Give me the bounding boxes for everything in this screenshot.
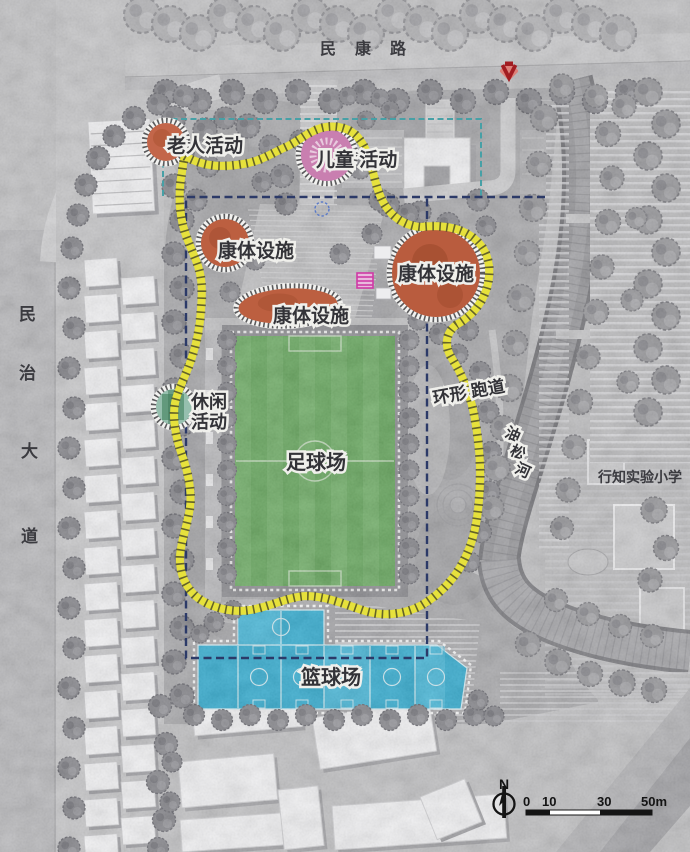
svg-text:10: 10 — [542, 794, 556, 809]
svg-text:30: 30 — [597, 794, 611, 809]
svg-text:0: 0 — [523, 794, 530, 809]
svg-text:休闲: 休闲 — [190, 391, 227, 412]
svg-text:老人活动: 老人活动 — [167, 134, 243, 157]
svg-text:道: 道 — [21, 526, 38, 546]
svg-text:康体设施: 康体设施 — [218, 239, 294, 262]
svg-text:50m: 50m — [641, 794, 667, 809]
svg-text:篮球场: 篮球场 — [300, 665, 361, 689]
svg-text:活动: 活动 — [191, 411, 227, 432]
svg-text:治: 治 — [19, 363, 36, 383]
svg-text:康体设施: 康体设施 — [273, 304, 349, 327]
svg-text:民康路: 民康路 — [320, 39, 425, 58]
svg-text:儿童 活动: 儿童 活动 — [315, 148, 397, 171]
svg-text:大: 大 — [21, 441, 38, 461]
svg-text:康体设施: 康体设施 — [398, 262, 474, 285]
svg-text:行知实验小学: 行知实验小学 — [597, 469, 682, 485]
svg-text:足球场: 足球场 — [286, 451, 346, 474]
svg-text:民: 民 — [19, 305, 36, 324]
